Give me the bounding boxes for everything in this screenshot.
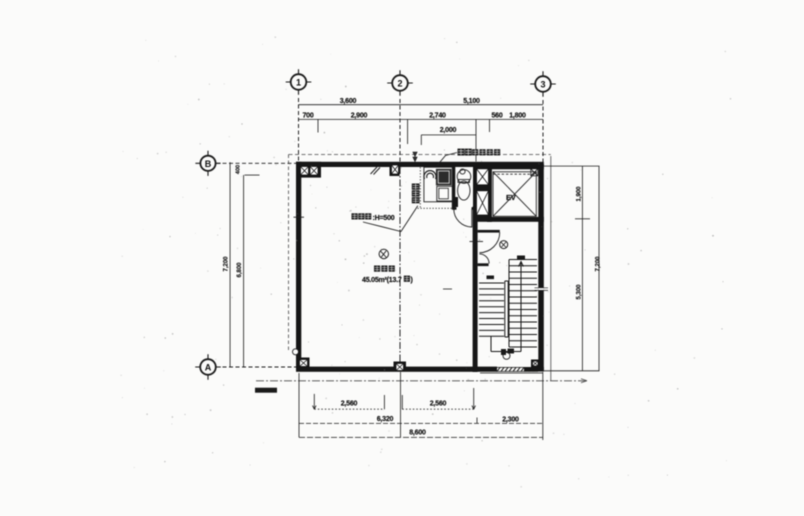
svg-text:5,300: 5,300: [577, 284, 583, 300]
svg-text:2,560: 2,560: [430, 401, 447, 408]
svg-text:7,200: 7,200: [224, 256, 230, 272]
svg-text:2,740: 2,740: [429, 112, 446, 119]
svg-text:6,800: 6,800: [237, 262, 243, 278]
svg-text:1,800: 1,800: [509, 112, 526, 119]
svg-text:1: 1: [296, 78, 301, 88]
svg-text:2,900: 2,900: [351, 112, 368, 119]
svg-text:700: 700: [302, 112, 313, 119]
svg-text:400: 400: [236, 165, 242, 174]
svg-text:B: B: [205, 159, 212, 169]
svg-text:3: 3: [540, 80, 545, 90]
svg-text:560: 560: [491, 112, 502, 119]
svg-text:EV: EV: [506, 193, 516, 202]
svg-text:1,900: 1,900: [577, 186, 583, 202]
svg-text:2,560: 2,560: [341, 401, 358, 408]
svg-text:2,000: 2,000: [440, 127, 457, 134]
svg-text:3,600: 3,600: [340, 98, 357, 105]
svg-text:A: A: [205, 363, 212, 373]
svg-text:6,320: 6,320: [377, 416, 394, 423]
svg-text:7,200: 7,200: [596, 256, 602, 272]
svg-text:5,100: 5,100: [463, 98, 480, 105]
svg-text::H=500: :H=500: [373, 215, 395, 222]
svg-text:): ): [411, 277, 413, 284]
svg-text:2,300: 2,300: [502, 416, 519, 423]
svg-text:2: 2: [397, 79, 402, 89]
svg-text:8,600: 8,600: [409, 430, 426, 437]
svg-text:45.05m²(13.7: 45.05m²(13.7: [362, 277, 402, 284]
